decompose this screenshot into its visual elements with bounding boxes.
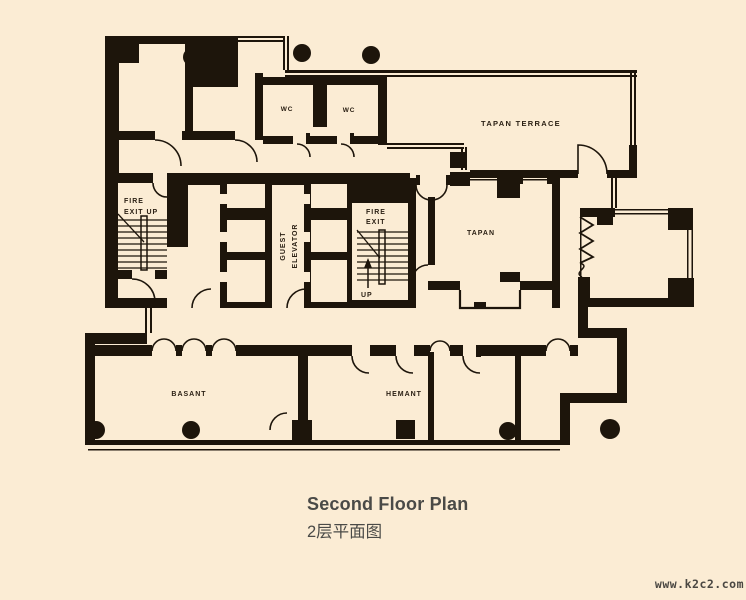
plan-caption: Second Floor Plan 2层平面图: [307, 494, 468, 542]
label-guest-elevator-line2: ELEVATOR: [292, 224, 299, 269]
folding-window-symbol: [580, 217, 593, 263]
floor-plan-image: FIRE EXIT UP GUEST ELEVATOR FIRE EXIT UP…: [0, 0, 746, 600]
stair-left: [118, 214, 167, 270]
label-basant: BASANT: [171, 391, 206, 398]
columns: [87, 419, 620, 440]
label-fire-exit-left-line1: FIRE: [124, 198, 144, 205]
label-guest-elevator-line1: GUEST: [280, 231, 287, 260]
column: [293, 44, 311, 62]
elevator-bank-right: [304, 176, 352, 308]
label-tapan-terrace: TAPAN TERRACE: [481, 119, 561, 128]
caption-title-english: Second Floor Plan: [307, 494, 468, 516]
right-room: [578, 178, 694, 307]
watermark: www.k2c2.com: [655, 577, 744, 591]
caption-title-chinese: 2层平面图: [307, 523, 468, 543]
label-up: UP: [361, 292, 373, 299]
label-wc-left: WC: [281, 106, 293, 113]
label-fire-exit-right-line2: EXIT: [366, 219, 386, 226]
label-wc-right: WC: [343, 107, 355, 114]
label-fire-exit-left-line2: EXIT UP: [124, 209, 158, 216]
label-tapan: TAPAN: [467, 230, 495, 237]
label-hemant: HEMANT: [386, 391, 422, 398]
label-fire-exit-right-line1: FIRE: [366, 209, 386, 216]
elevator-bank-left: [220, 176, 272, 308]
stair-right: [357, 230, 408, 288]
exterior-and-interior-walls: [85, 36, 694, 451]
column: [362, 46, 380, 64]
